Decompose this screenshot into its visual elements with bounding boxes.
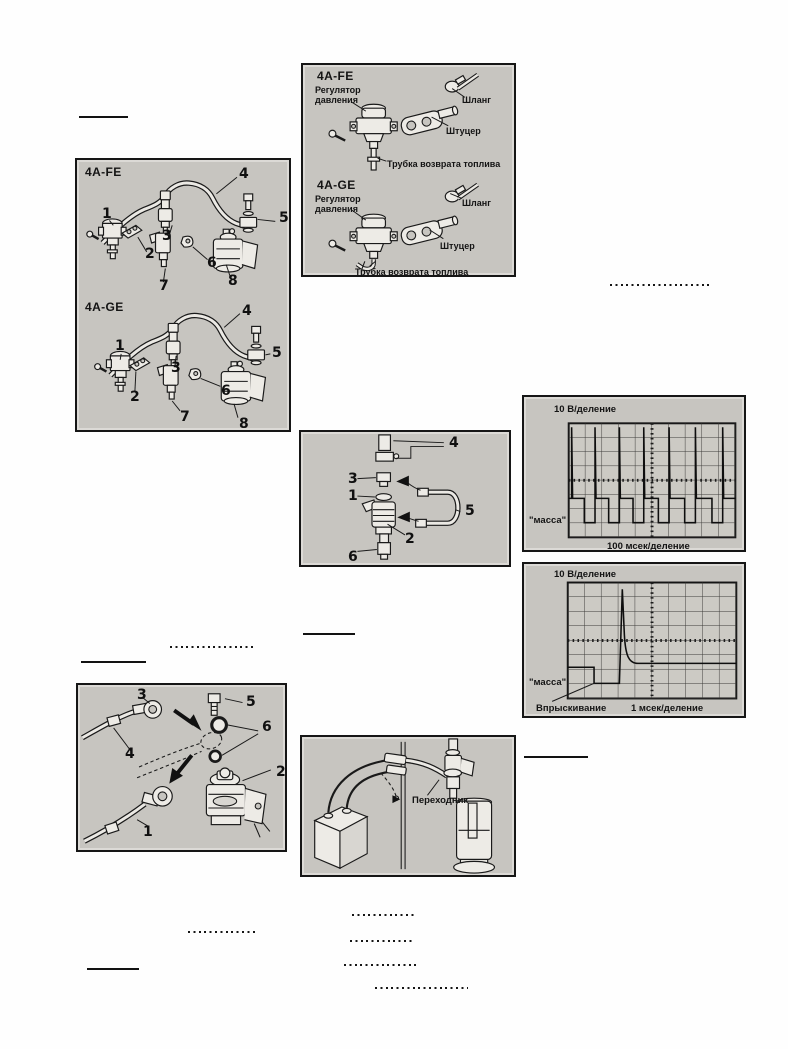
callout-1: 1	[143, 825, 153, 839]
hose-label-fe: Шланг	[462, 96, 491, 106]
callout-fe-4: 4	[239, 167, 249, 181]
callout-3: 3	[348, 472, 358, 486]
callout-fe-1: 1	[102, 207, 112, 221]
callout-fe-8: 8	[228, 274, 238, 288]
callout-2: 2	[405, 532, 415, 546]
callout-4: 4	[125, 747, 135, 761]
fuel-system-drawing	[77, 160, 289, 430]
figure-hose-connection: 1 2 3 4 5 6	[76, 683, 287, 852]
voltage-scale-label: 10 В/деление	[554, 405, 616, 415]
engine-label-ge: 4A-GE	[317, 179, 356, 192]
figure-oscillogram-injection: 10 В/деление "масса" Впрыскивание 1 мсек…	[522, 562, 746, 718]
dotted-leader-6	[344, 964, 419, 966]
callout-ge-6: 6	[221, 384, 231, 398]
figure-oscillogram-operation: 10 В/деление "масса" 100 мсек/деление	[522, 395, 746, 552]
callout-ge-2: 2	[130, 390, 140, 404]
figure-injector-volume-test: Переходник	[300, 735, 516, 877]
ground-label: "масса"	[529, 516, 566, 526]
dotted-leader-5	[350, 940, 415, 942]
time-scale-label: 100 мсек/деление	[607, 542, 690, 552]
redacted-heading-rule-5	[87, 968, 139, 970]
figure-injector-assembly: 1 2 3 4 5 6	[299, 430, 511, 567]
oscillogram-injection-drawing	[524, 564, 744, 716]
hose-label-ge: Шланг	[462, 199, 491, 209]
callout-ge-1: 1	[115, 339, 125, 353]
callout-ge-5: 5	[272, 346, 282, 360]
callout-1: 1	[348, 489, 358, 503]
dotted-leader-1	[610, 284, 709, 286]
engine-label-ge: 4A-GE	[85, 301, 124, 314]
callout-5: 5	[465, 504, 475, 518]
callout-5: 5	[246, 695, 256, 709]
callout-6: 6	[262, 720, 272, 734]
union-label-ge: Штуцер	[440, 242, 475, 252]
callout-3: 3	[137, 688, 147, 702]
regulator-label-ge: Регулятор давления	[315, 195, 369, 215]
return-pipe-label-ge: Трубка возврата топлива	[355, 268, 468, 278]
callout-fe-6: 6	[207, 256, 217, 270]
manual-page: 4A-FE 4A-GE 1 2 3 4 5 6 7 8 1 2 3 4 5 6 …	[0, 0, 788, 1049]
figure-fuel-system-components: 4A-FE 4A-GE 1 2 3 4 5 6 7 8 1 2 3 4 5 6 …	[75, 158, 291, 432]
ground-label: "масса"	[529, 678, 566, 688]
dotted-leader-7	[375, 987, 468, 989]
callout-6: 6	[348, 550, 358, 564]
engine-label-fe: 4A-FE	[85, 166, 122, 179]
injector-test-drawing	[302, 737, 514, 875]
redacted-heading-rule-4	[524, 756, 588, 758]
dotted-leader-3	[352, 914, 414, 916]
callout-fe-2: 2	[145, 247, 155, 261]
oscillogram-operation-drawing	[524, 397, 744, 550]
return-pipe-label-fe: Трубка возврата топлива	[387, 160, 500, 170]
regulator-label-fe: Регулятор давления	[315, 86, 369, 106]
redacted-heading-rule-3	[81, 661, 146, 663]
dotted-leader-2	[170, 646, 255, 648]
callout-ge-8: 8	[239, 417, 249, 431]
injection-label: Впрыскивание	[536, 704, 606, 714]
redacted-heading-rule-1	[79, 116, 128, 118]
engine-label-fe: 4A-FE	[317, 70, 354, 83]
voltage-scale-label: 10 В/деление	[554, 570, 616, 580]
callout-ge-4: 4	[242, 304, 252, 318]
dotted-leader-4	[188, 931, 257, 933]
callout-fe-3: 3	[162, 229, 172, 243]
figure-pressure-regulator: 4A-FE Регулятор давления Шланг Штуцер Тр…	[301, 63, 516, 277]
time-scale-label: 1 мсек/деление	[631, 704, 703, 714]
callout-ge-3: 3	[171, 361, 181, 375]
callout-ge-7: 7	[180, 410, 190, 424]
callout-fe-5: 5	[279, 211, 289, 225]
union-label-fe: Штуцер	[446, 127, 481, 137]
callout-4: 4	[449, 436, 459, 450]
adapter-label: Переходник	[412, 796, 468, 806]
redacted-heading-rule-2	[303, 633, 355, 635]
callout-2: 2	[276, 765, 286, 779]
callout-fe-7: 7	[159, 279, 169, 293]
